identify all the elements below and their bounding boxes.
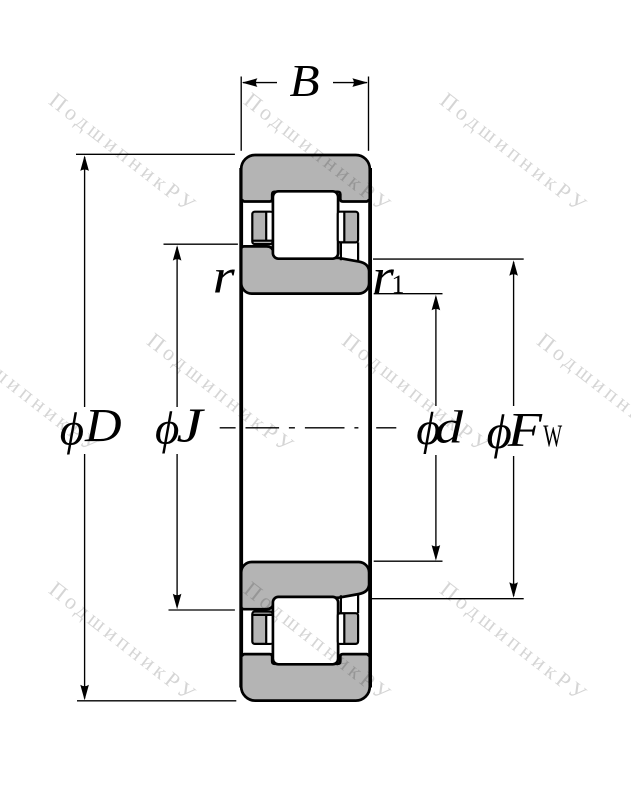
svg-text:F: F bbox=[507, 403, 543, 457]
svg-text:B: B bbox=[290, 56, 320, 106]
svg-text:W: W bbox=[543, 418, 563, 454]
svg-text:r: r bbox=[213, 250, 235, 304]
svg-text:ПодшипникРУ: ПодшипникРУ bbox=[435, 87, 591, 217]
svg-text:J: J bbox=[177, 399, 205, 453]
svg-text:ПодшипникРУ: ПодшипникРУ bbox=[0, 328, 103, 458]
svg-text:ПодшипникРУ: ПодшипникРУ bbox=[44, 87, 200, 217]
svg-text:1: 1 bbox=[392, 270, 405, 299]
